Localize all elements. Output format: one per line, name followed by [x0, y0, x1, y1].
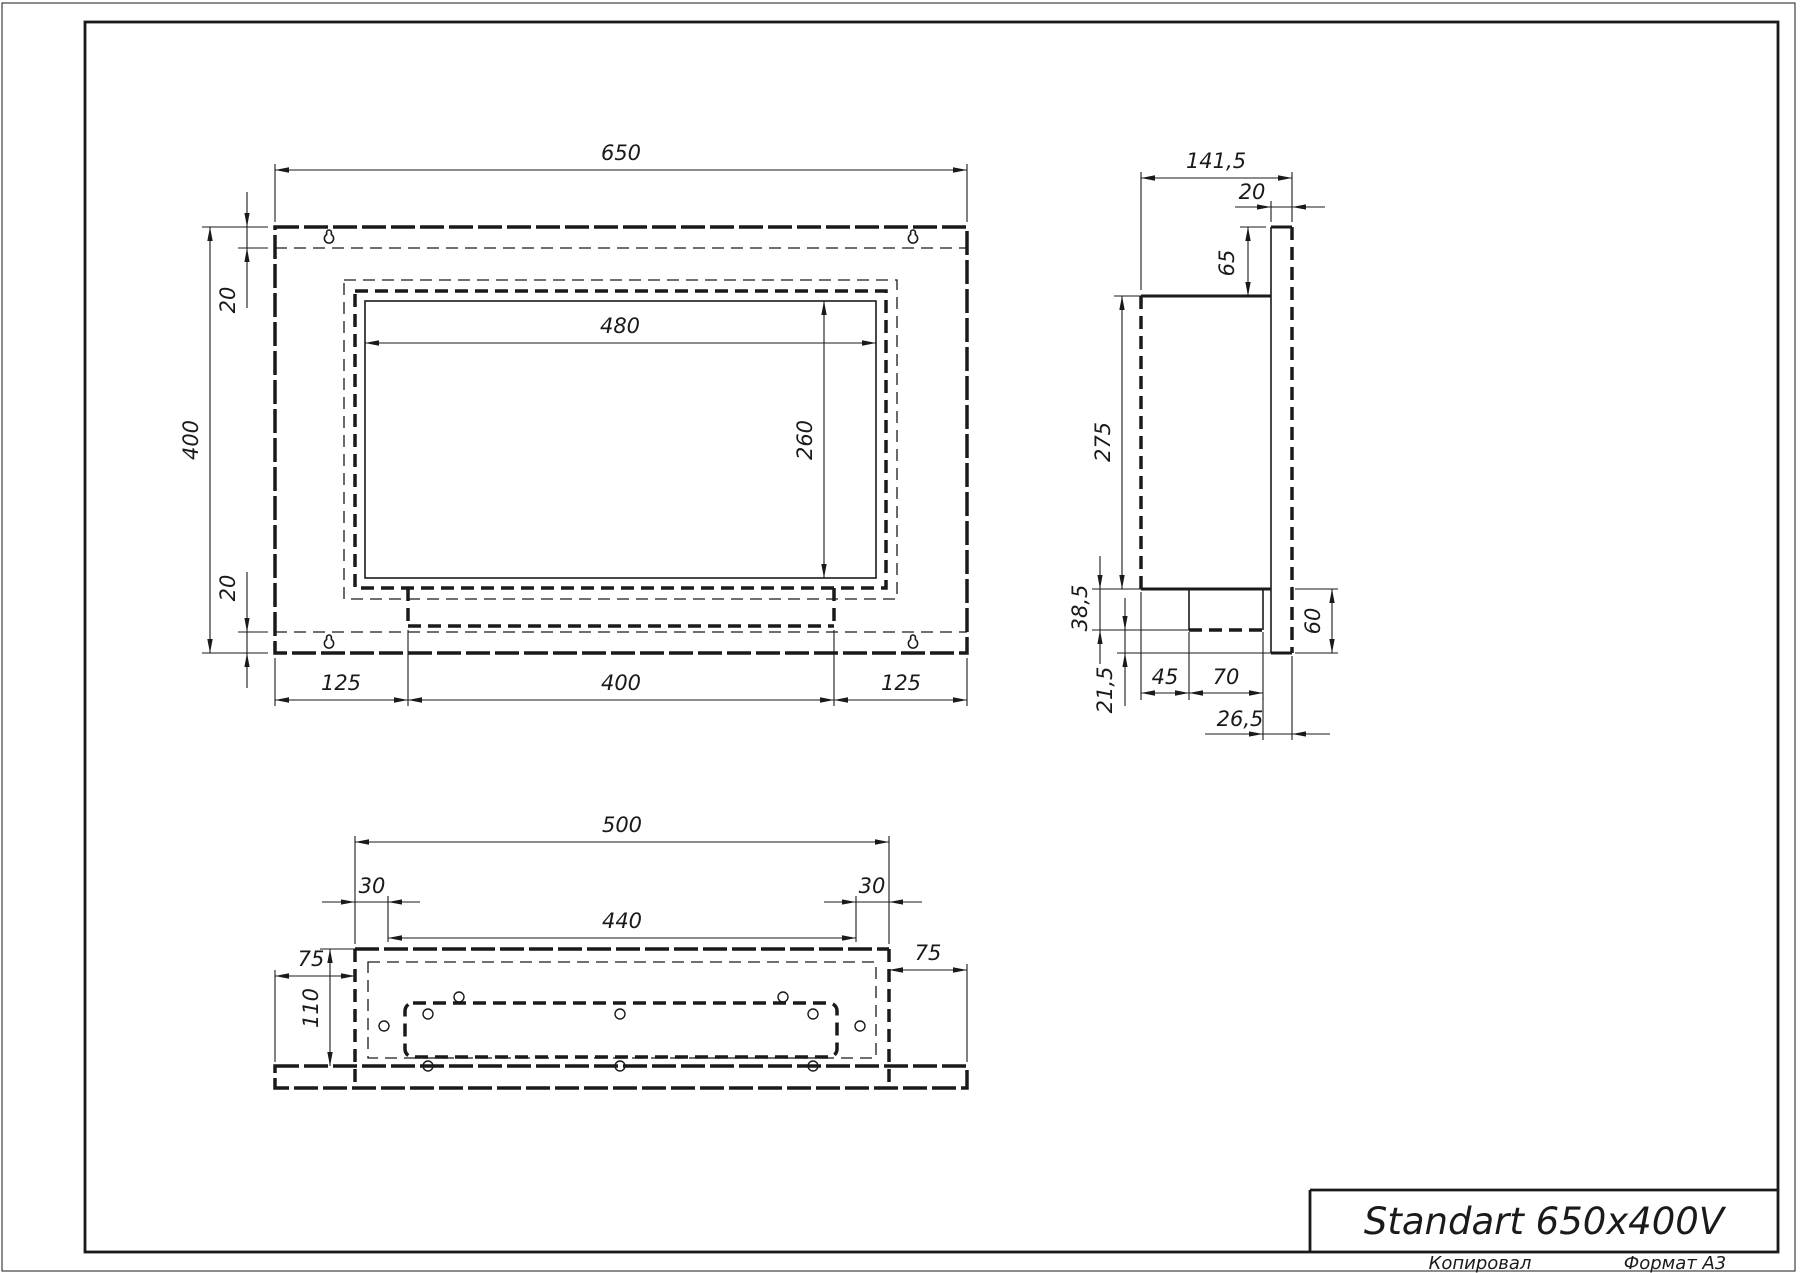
- bottom-dim-right-overhang: 75: [915, 941, 942, 965]
- bottom-dim-body-width: 500: [602, 813, 642, 837]
- side-dim-flange-drop: 21,5: [1093, 667, 1117, 714]
- front-dim-tray-width: 400: [601, 671, 641, 695]
- sheet-footer: Копировал Формат А3: [1429, 1253, 1727, 1273]
- technical-drawing: 650 400 20 20 480 260 125 400 12: [0, 0, 1800, 1273]
- front-dim-bottom-inset: 20: [216, 575, 240, 602]
- side-dim-tray-right-offset: 26,5: [1217, 707, 1264, 731]
- side-dim-depth: 141,5: [1186, 149, 1246, 173]
- side-view: 141,5 20 65 275 38,5 21,5: [1068, 149, 1338, 740]
- side-dim-bottom-height: 60: [1301, 608, 1325, 635]
- bottom-dim-left-inset: 30: [359, 874, 386, 898]
- side-dim-flange: 20: [1239, 180, 1266, 204]
- format-label: Формат А3: [1624, 1253, 1727, 1273]
- front-dim-opening-width: 480: [600, 314, 640, 338]
- side-dim-tray-drop: 38,5: [1068, 585, 1092, 632]
- bottom-dim-depth: 110: [299, 988, 323, 1028]
- front-view: 650 400 20 20 480 260 125 400 12: [179, 141, 967, 706]
- sheet-edge: [2, 3, 1795, 1271]
- bottom-burner-box: [405, 1003, 837, 1057]
- bottom-flange-strip: [275, 1066, 967, 1088]
- title-block: Standart 650x400V: [1310, 1190, 1778, 1252]
- bottom-dim-left-overhang: 75: [298, 947, 325, 971]
- side-dim-top-offset: 65: [1215, 250, 1239, 277]
- bottom-view: 500 30 30 440 75 110 75: [275, 813, 967, 1088]
- front-dim-top-inset: 20: [216, 287, 240, 314]
- copied-label: Копировал: [1429, 1253, 1532, 1273]
- drawing-title: Standart 650x400V: [1364, 1200, 1727, 1243]
- front-dim-left-offset: 125: [321, 671, 361, 695]
- bottom-dim-inner-width: 440: [602, 909, 642, 933]
- front-dim-opening-height: 260: [793, 420, 817, 460]
- front-dim-right-offset: 125: [881, 671, 921, 695]
- front-dim-width: 650: [601, 141, 641, 165]
- drawing-sheet: 650 400 20 20 480 260 125 400 12: [0, 0, 1800, 1273]
- bottom-dim-right-inset: 30: [859, 874, 886, 898]
- front-dim-height: 400: [179, 420, 203, 460]
- side-dim-tray-depth: 70: [1213, 665, 1240, 689]
- side-dim-body-height: 275: [1091, 422, 1115, 462]
- side-dim-tray-left-offset: 45: [1152, 665, 1179, 689]
